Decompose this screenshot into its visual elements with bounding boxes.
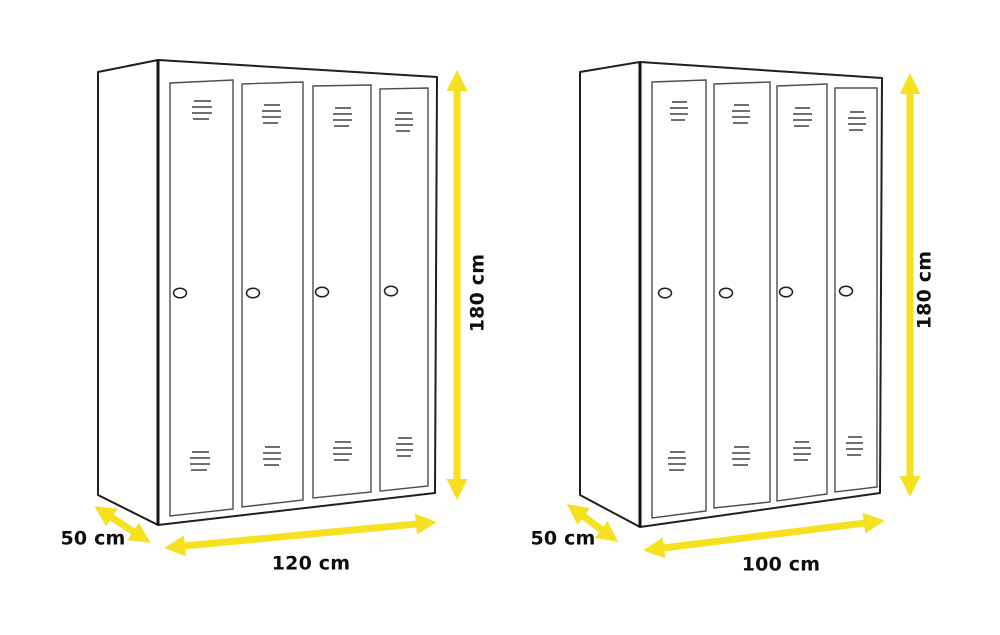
locker-100-figure (580, 62, 910, 548)
handle-icon (840, 286, 853, 296)
locker-120-width-label: 120 cm (272, 555, 351, 574)
locker-120-width-arrow (184, 524, 417, 546)
locker-120-door-1 (170, 80, 233, 516)
locker-100-height-label: 180 cm (916, 251, 935, 330)
handle-icon (385, 286, 398, 296)
locker-120-figure (98, 60, 457, 546)
handle-icon (247, 288, 260, 298)
locker-120-height-label: 180 cm (469, 254, 488, 333)
locker-120-side-panel (98, 60, 158, 525)
locker-100-door-1 (652, 80, 706, 518)
diagram-canvas: 180 cm 120 cm 50 cm 180 cm 100 cm 50 cm (0, 0, 1000, 635)
lockers-diagram (0, 0, 1000, 635)
locker-100-width-label: 100 cm (742, 556, 821, 575)
handle-icon (316, 287, 329, 297)
locker-100-width-arrow (663, 523, 865, 548)
locker-120-door-3 (313, 85, 371, 498)
locker-120-depth-label: 50 cm (60, 530, 125, 549)
handle-icon (720, 288, 733, 298)
locker-100-depth-label: 50 cm (530, 530, 595, 549)
locker-100-door-3 (777, 84, 827, 501)
handle-icon (174, 288, 187, 298)
locker-100-door-4 (835, 88, 877, 492)
locker-120-door-4 (380, 88, 428, 491)
handle-icon (659, 288, 672, 298)
locker-100-side-panel (580, 62, 640, 527)
locker-100-door-2 (714, 82, 770, 508)
locker-120-door-2 (242, 82, 303, 507)
handle-icon (780, 287, 793, 297)
